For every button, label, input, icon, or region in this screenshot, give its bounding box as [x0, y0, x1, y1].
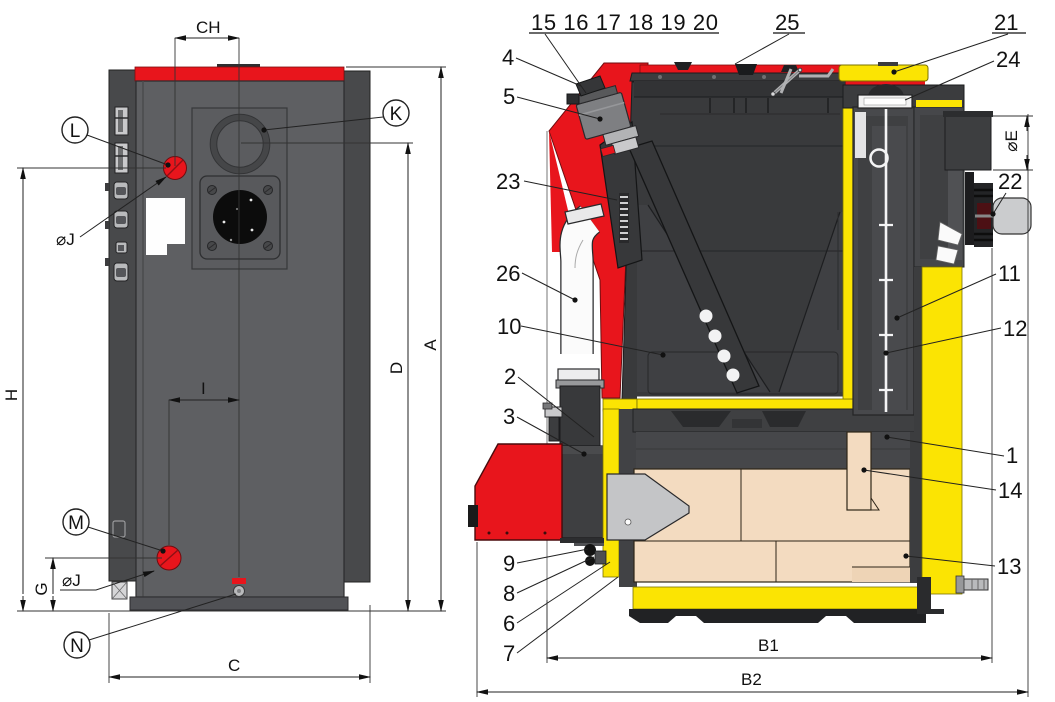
svg-text:C: C	[228, 656, 240, 675]
svg-text:L: L	[70, 121, 81, 142]
svg-text:A: A	[421, 339, 440, 351]
svg-text:8: 8	[503, 581, 515, 606]
svg-text:12: 12	[1003, 316, 1027, 341]
svg-text:3: 3	[503, 404, 515, 429]
svg-text:22: 22	[998, 169, 1022, 194]
svg-text:CH: CH	[196, 18, 221, 37]
svg-text:M: M	[68, 513, 84, 534]
svg-text:⌀J: ⌀J	[62, 571, 81, 590]
svg-text:6: 6	[503, 611, 515, 636]
svg-text:9: 9	[503, 551, 515, 576]
svg-text:23: 23	[496, 169, 520, 194]
svg-text:2: 2	[504, 364, 516, 389]
svg-text:5: 5	[503, 84, 515, 109]
svg-text:26: 26	[496, 261, 520, 286]
svg-text:15 16 17 18 19 20: 15 16 17 18 19 20	[531, 10, 719, 35]
svg-text:11: 11	[998, 261, 1021, 286]
svg-text:24: 24	[996, 47, 1020, 72]
svg-text:N: N	[70, 636, 84, 657]
svg-text:14: 14	[998, 478, 1022, 503]
svg-text:1: 1	[1006, 443, 1018, 468]
svg-text:D: D	[387, 362, 406, 374]
svg-text:H: H	[2, 389, 21, 401]
svg-text:K: K	[390, 104, 403, 125]
svg-text:10: 10	[497, 314, 521, 339]
svg-text:⌀E: ⌀E	[1002, 130, 1021, 152]
svg-text:7: 7	[503, 641, 515, 666]
svg-text:25: 25	[775, 10, 799, 35]
svg-text:21: 21	[994, 10, 1018, 35]
svg-text:B2: B2	[741, 670, 762, 689]
svg-text:I: I	[201, 379, 206, 398]
svg-text:G: G	[32, 582, 51, 595]
svg-text:4: 4	[502, 45, 514, 70]
svg-text:13: 13	[997, 554, 1021, 579]
svg-text:B1: B1	[758, 636, 779, 655]
svg-text:⌀J: ⌀J	[56, 230, 75, 249]
